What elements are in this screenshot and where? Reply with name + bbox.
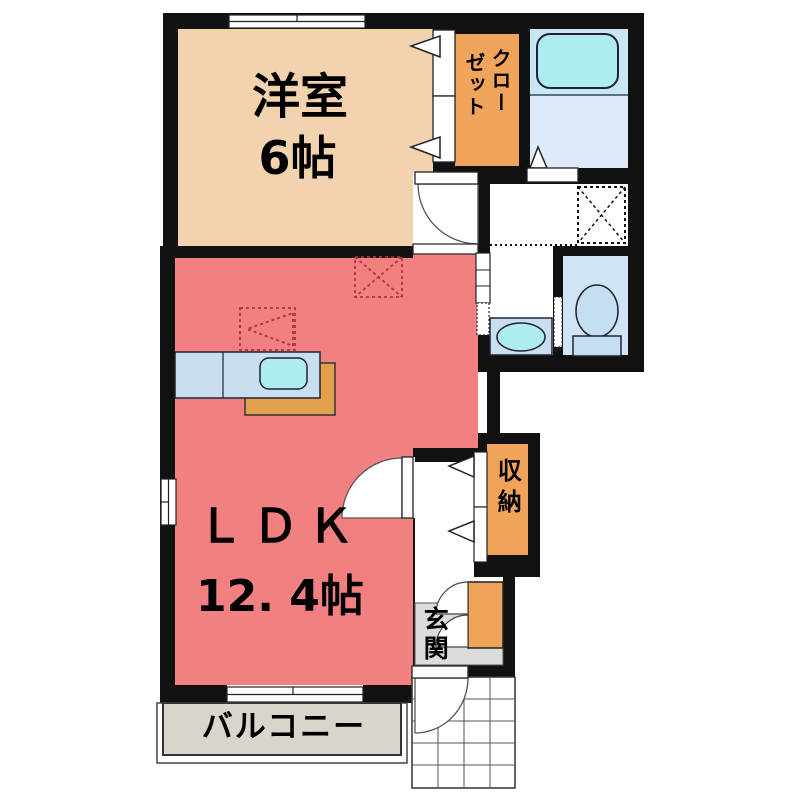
wall-toilet-top	[553, 246, 628, 256]
ldk-label: ＬＤＫ	[155, 502, 405, 550]
kitchen-sink	[260, 358, 307, 389]
toilet-bowl	[576, 285, 618, 337]
western-room-size-label: 6帖	[185, 134, 410, 182]
storage-door-panel	[474, 452, 487, 507]
toilet-tank	[573, 336, 621, 356]
bathtub	[537, 34, 618, 88]
entrance-door-leaf	[412, 666, 468, 678]
toilet-sliding-door	[554, 297, 562, 347]
corridor-ldk-threshold	[413, 244, 478, 254]
wall-entrance-right	[503, 563, 515, 665]
storage-door-panel	[474, 507, 487, 562]
wall-sanitary-bottom	[476, 355, 644, 372]
bathroom-floor-lower	[530, 95, 628, 168]
wall-balcony-right	[363, 685, 415, 703]
western-room-door-leaf	[415, 172, 478, 184]
wall-left-upper	[163, 13, 178, 263]
ldk-floor-right	[413, 253, 478, 448]
closet-label-col-right: クロー	[489, 48, 510, 114]
shoe-cabinet	[468, 582, 503, 648]
ldk-size-label: 12. 4帖	[150, 574, 410, 620]
balcony-label: バルコニー	[168, 711, 400, 744]
washroom-sliding-door	[476, 253, 490, 335]
wall-left-lower	[160, 246, 176, 703]
washbasin-sink	[497, 323, 545, 351]
wall-entrance-bottom-bar	[468, 665, 515, 677]
washing-machine-space	[578, 187, 625, 243]
bathroom-threshold	[527, 168, 578, 182]
floorplan-canvas: 洋室 6帖 クロー ゼット ＬＤＫ 12. 4帖 収納 玄関 バルコニー	[0, 0, 800, 800]
sliding-window-balcony	[227, 687, 363, 702]
sliding-window-top	[229, 15, 365, 28]
wall-column-mid	[476, 335, 490, 357]
wall-western-bottom-thin	[280, 246, 415, 258]
wall-right-outer	[628, 184, 644, 372]
closet-label-col-left: ゼット	[463, 52, 484, 118]
entrance-label: 玄関	[421, 606, 447, 664]
western-room-label: 洋室	[185, 72, 415, 122]
wall-balcony-left	[163, 685, 227, 703]
storage-label: 収納	[494, 458, 519, 520]
